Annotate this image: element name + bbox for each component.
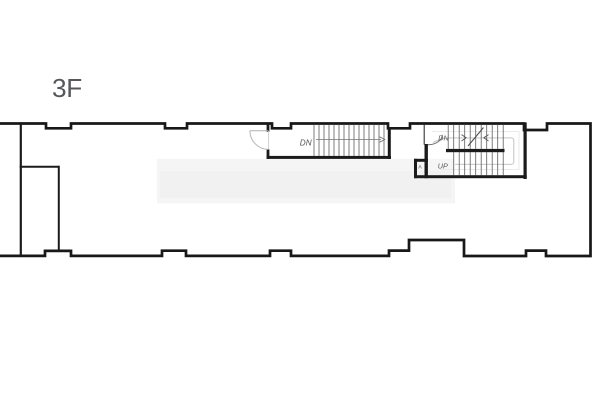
svg-text:DN: DN — [438, 134, 449, 143]
svg-text:UP: UP — [438, 161, 448, 170]
svg-text:DN: DN — [300, 138, 312, 147]
svg-text:3F: 3F — [52, 73, 82, 103]
